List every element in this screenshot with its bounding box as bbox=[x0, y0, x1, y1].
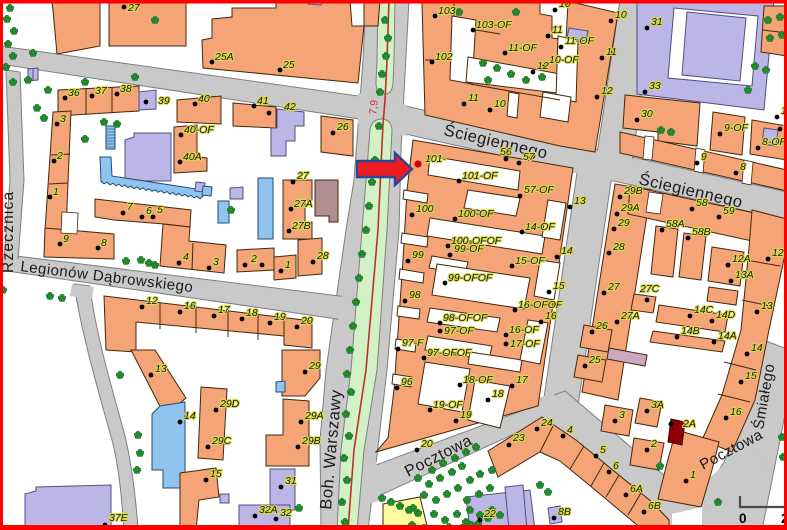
svg-text:14B: 14B bbox=[681, 325, 700, 337]
svg-text:14: 14 bbox=[184, 410, 196, 422]
svg-text:31: 31 bbox=[285, 475, 297, 487]
svg-text:40A: 40A bbox=[183, 151, 202, 163]
svg-text:5: 5 bbox=[600, 444, 606, 456]
svg-text:14: 14 bbox=[561, 245, 573, 257]
svg-text:103: 103 bbox=[438, 5, 456, 17]
svg-text:5: 5 bbox=[157, 204, 163, 216]
svg-text:27: 27 bbox=[607, 281, 621, 293]
svg-text:10-OF: 10-OF bbox=[549, 54, 579, 66]
svg-text:12: 12 bbox=[601, 85, 613, 97]
svg-text:2: 2 bbox=[56, 150, 63, 162]
svg-text:101-: 101- bbox=[425, 153, 447, 165]
svg-text:59: 59 bbox=[723, 205, 735, 217]
svg-text:8: 8 bbox=[740, 161, 746, 173]
svg-text:58A: 58A bbox=[666, 218, 685, 230]
svg-text:1: 1 bbox=[285, 259, 291, 271]
svg-text:11: 11 bbox=[552, 24, 563, 36]
svg-text:33: 33 bbox=[649, 80, 661, 92]
svg-text:11-OF: 11-OF bbox=[508, 42, 538, 54]
svg-text:1: 1 bbox=[690, 469, 696, 481]
svg-text:6: 6 bbox=[613, 460, 619, 472]
svg-text:25A: 25A bbox=[214, 51, 234, 63]
svg-text:3: 3 bbox=[619, 409, 625, 421]
svg-text:102: 102 bbox=[435, 51, 453, 63]
svg-text:28: 28 bbox=[316, 250, 329, 262]
svg-text:24: 24 bbox=[540, 417, 553, 429]
svg-text:22: 22 bbox=[483, 508, 496, 520]
svg-text:58B: 58B bbox=[692, 226, 711, 238]
svg-text:96: 96 bbox=[401, 376, 413, 388]
svg-text:15: 15 bbox=[745, 370, 757, 382]
svg-text:12: 12 bbox=[772, 247, 784, 259]
svg-text:8B: 8B bbox=[558, 506, 571, 518]
svg-text:37E: 37E bbox=[109, 512, 129, 524]
svg-text:99-OF: 99-OF bbox=[454, 243, 484, 255]
svg-text:3A: 3A bbox=[651, 399, 664, 411]
svg-text:103-OF: 103-OF bbox=[476, 19, 512, 31]
svg-text:27: 27 bbox=[127, 2, 141, 14]
svg-text:29A: 29A bbox=[304, 410, 324, 422]
svg-text:16: 16 bbox=[184, 300, 196, 312]
svg-text:19-OF: 19-OF bbox=[433, 399, 463, 411]
svg-text:97-OFOF: 97-OFOF bbox=[427, 347, 472, 359]
svg-text:8-OF: 8-OF bbox=[762, 136, 787, 148]
svg-text:29B: 29B bbox=[623, 185, 643, 197]
svg-text:26: 26 bbox=[595, 320, 608, 332]
svg-text:12: 12 bbox=[146, 295, 158, 307]
svg-text:58: 58 bbox=[696, 197, 708, 209]
svg-text:11: 11 bbox=[606, 46, 617, 58]
svg-text:30: 30 bbox=[641, 108, 653, 120]
svg-text:1: 1 bbox=[53, 186, 59, 198]
svg-text:97-OF: 97-OF bbox=[444, 325, 474, 337]
svg-text:37: 37 bbox=[95, 85, 108, 97]
svg-text:15: 15 bbox=[553, 280, 565, 292]
svg-text:15-OF: 15-OF bbox=[515, 255, 545, 267]
svg-text:2: 2 bbox=[250, 253, 257, 265]
svg-text:13: 13 bbox=[761, 300, 773, 312]
svg-text:14D: 14D bbox=[716, 309, 736, 321]
svg-text:42: 42 bbox=[284, 101, 296, 113]
svg-text:17: 17 bbox=[218, 304, 231, 316]
svg-text:100-OF: 100-OF bbox=[458, 208, 494, 220]
svg-text:28: 28 bbox=[612, 241, 625, 253]
svg-text:18: 18 bbox=[246, 307, 258, 319]
svg-text:20: 20 bbox=[420, 438, 433, 450]
svg-text:19: 19 bbox=[274, 311, 286, 323]
svg-text:10: 10 bbox=[494, 98, 506, 110]
svg-text:57-OF: 57-OF bbox=[524, 184, 554, 196]
svg-text:7,9: 7,9 bbox=[367, 99, 381, 115]
svg-text:18-OF: 18-OF bbox=[463, 374, 493, 386]
svg-text:57: 57 bbox=[523, 151, 536, 163]
svg-text:41: 41 bbox=[257, 95, 269, 107]
svg-text:2: 2 bbox=[650, 438, 657, 450]
svg-text:9: 9 bbox=[701, 151, 707, 163]
svg-text:27A: 27A bbox=[620, 310, 640, 322]
svg-text:3: 3 bbox=[60, 113, 66, 125]
svg-text:6B: 6B bbox=[648, 500, 661, 512]
svg-text:6: 6 bbox=[146, 205, 152, 217]
svg-text:31: 31 bbox=[651, 16, 663, 28]
svg-text:13A: 13A bbox=[735, 269, 754, 281]
svg-text:98: 98 bbox=[409, 289, 421, 301]
svg-text:12A: 12A bbox=[732, 253, 751, 265]
svg-text:3: 3 bbox=[213, 256, 219, 268]
svg-text:16-OF: 16-OF bbox=[509, 324, 539, 336]
svg-text:32A: 32A bbox=[259, 504, 278, 516]
svg-text:18: 18 bbox=[492, 388, 504, 400]
svg-text:27C: 27C bbox=[639, 283, 660, 295]
svg-text:99: 99 bbox=[412, 249, 424, 261]
svg-text:32: 32 bbox=[280, 507, 292, 519]
svg-text:29C: 29C bbox=[211, 435, 232, 447]
svg-text:11-OF: 11-OF bbox=[565, 35, 595, 47]
svg-text:29A: 29A bbox=[620, 202, 640, 214]
svg-text:27B: 27B bbox=[291, 220, 311, 232]
svg-text:0: 0 bbox=[739, 511, 747, 526]
svg-text:56: 56 bbox=[500, 146, 512, 158]
svg-text:14A: 14A bbox=[718, 330, 737, 342]
svg-text:29: 29 bbox=[617, 217, 630, 229]
svg-text:36: 36 bbox=[68, 87, 80, 99]
svg-text:6A: 6A bbox=[630, 483, 643, 495]
svg-text:29: 29 bbox=[308, 360, 321, 372]
svg-text:100: 100 bbox=[416, 203, 434, 215]
svg-text:16: 16 bbox=[545, 310, 557, 322]
svg-text:25: 25 bbox=[282, 59, 295, 71]
svg-text:4: 4 bbox=[183, 251, 189, 263]
svg-text:4: 4 bbox=[567, 424, 573, 436]
svg-text:2A: 2A bbox=[682, 418, 696, 430]
svg-text:23: 23 bbox=[512, 432, 525, 444]
svg-text:99-OFOF: 99-OFOF bbox=[448, 272, 493, 284]
svg-text:16: 16 bbox=[730, 406, 742, 418]
svg-text:38: 38 bbox=[120, 83, 132, 95]
svg-text:9: 9 bbox=[63, 233, 69, 245]
svg-text:14: 14 bbox=[751, 342, 763, 354]
svg-text:13: 13 bbox=[155, 363, 167, 375]
svg-text:40: 40 bbox=[198, 93, 210, 105]
svg-text:11: 11 bbox=[468, 92, 479, 104]
svg-text:8: 8 bbox=[101, 237, 107, 249]
svg-text:13: 13 bbox=[574, 195, 586, 207]
svg-text:10: 10 bbox=[615, 9, 627, 21]
svg-text:17-OF: 17-OF bbox=[510, 338, 540, 350]
svg-text:29D: 29D bbox=[219, 398, 240, 410]
svg-text:9-OF: 9-OF bbox=[724, 122, 749, 134]
svg-text:26: 26 bbox=[336, 121, 349, 133]
svg-text:101-OF: 101-OF bbox=[462, 170, 498, 182]
svg-text:98-OFOF: 98-OFOF bbox=[443, 312, 488, 324]
svg-text:29B: 29B bbox=[301, 435, 321, 447]
svg-text:39: 39 bbox=[158, 95, 170, 107]
svg-text:27: 27 bbox=[296, 170, 310, 182]
svg-text:40-OF: 40-OF bbox=[184, 124, 214, 136]
svg-text:20: 20 bbox=[300, 315, 313, 327]
svg-text:97-F: 97-F bbox=[402, 337, 424, 349]
svg-text:17: 17 bbox=[516, 374, 529, 386]
svg-text:12: 12 bbox=[537, 60, 549, 72]
svg-text:14-OF: 14-OF bbox=[525, 221, 555, 233]
svg-text:15: 15 bbox=[210, 468, 222, 480]
svg-text:25: 25 bbox=[588, 354, 601, 366]
svg-text:27A: 27A bbox=[293, 198, 313, 210]
svg-text:14C: 14C bbox=[694, 304, 714, 316]
svg-text:19: 19 bbox=[460, 409, 472, 421]
